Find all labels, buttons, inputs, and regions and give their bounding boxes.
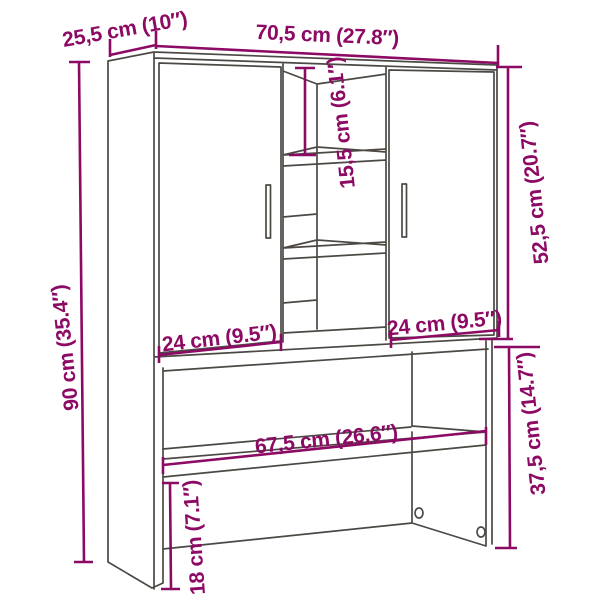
screw-hole xyxy=(415,508,423,518)
dimension-line xyxy=(479,67,522,339)
dimension-label-lower-section-height: 37,5 cm (14.7″) xyxy=(513,351,551,496)
left-door-handle xyxy=(266,185,271,238)
dimension-label-upper-section-height: 52,5 cm (20.7″) xyxy=(516,120,554,265)
dimension-depth-top: 25,5 cm (10″) xyxy=(61,7,189,57)
dimension-label-shelf-width: 67,5 cm (26.6″) xyxy=(254,421,399,459)
product-dimension-image: 25,5 cm (10″) 70,5 cm (27.8″) 15,5 cm (6… xyxy=(0,0,600,600)
dimension-middle-opening-height: 15,5 cm (6.1″) xyxy=(289,56,360,190)
dimension-label-middle-opening-height: 15,5 cm (6.1″) xyxy=(323,56,360,190)
dimension-label-width-top: 70,5 cm (27.8″) xyxy=(255,21,399,50)
dimension-upper-section-height: 52,5 cm (20.7″) xyxy=(479,67,553,339)
dimension-total-height: 90 cm (35.4″) xyxy=(47,62,93,562)
dimension-lower-side-panel-height: 18 cm (7.1″) xyxy=(161,479,210,595)
screw-hole xyxy=(477,527,485,537)
dimension-label-total-height: 90 cm (35.4″) xyxy=(47,284,83,412)
dimension-line xyxy=(289,68,316,155)
dimension-lower-section-height: 37,5 cm (14.7″) xyxy=(494,347,550,548)
right-door xyxy=(389,70,494,338)
dimension-diagram: 25,5 cm (10″) 70,5 cm (27.8″) 15,5 cm (6… xyxy=(0,0,600,600)
dimension-left-door-width: 24 cm (9.5″) xyxy=(159,321,281,363)
right-door-handle xyxy=(402,184,407,237)
dimension-label-lower-side-panel-height: 18 cm (7.1″) xyxy=(179,479,210,595)
left-door xyxy=(159,63,281,353)
dimension-label-depth-top: 25,5 cm (10″) xyxy=(61,7,189,52)
